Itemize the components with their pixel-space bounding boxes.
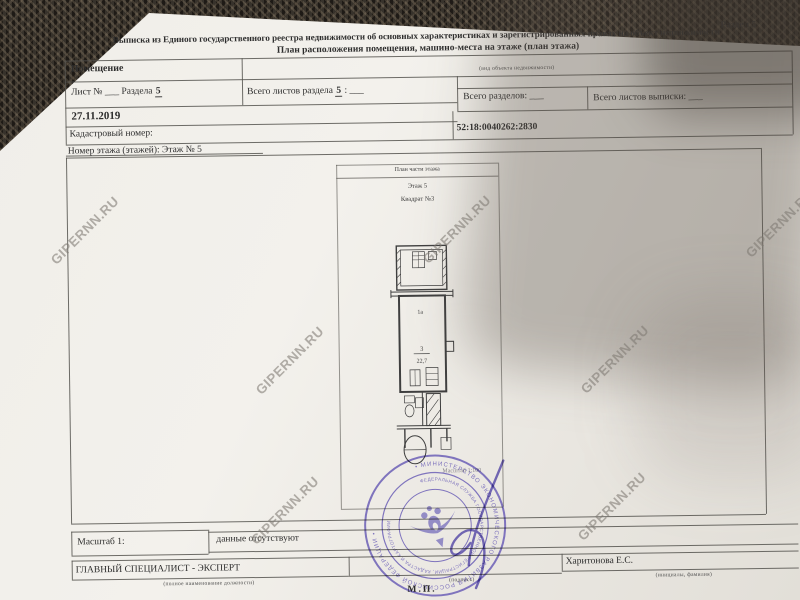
divider	[65, 72, 792, 83]
divider	[72, 554, 209, 557]
total-sheets-cell: Всего листов раздела 5 : ___	[247, 85, 364, 97]
cadastral-label: Кадастровый номер:	[70, 128, 153, 139]
divider	[587, 86, 588, 109]
divider	[72, 561, 73, 580]
divider	[457, 107, 792, 113]
divider	[457, 76, 458, 111]
divider	[349, 557, 350, 576]
signer-position: ГЛАВНЫЙ СПЕЦИАЛИСТ - ЭКСПЕРТ	[76, 563, 240, 575]
total-extract-sheets-cell: Всего листов выписки: ___	[593, 92, 703, 104]
room-number: 3	[420, 346, 423, 353]
divider	[562, 554, 563, 571]
divider	[452, 111, 453, 139]
razdel-label: Раздела	[121, 86, 152, 96]
plan-floor-label: Этаж 5	[336, 182, 498, 191]
extract-date: 27.11.2019	[71, 110, 120, 123]
room-top-label: 1а	[417, 310, 423, 316]
total-sheets-blank: : ___	[344, 85, 363, 95]
plan-title: План части этажа	[336, 166, 498, 174]
document: Раздел 5 Выписка из Единого государствен…	[0, 0, 800, 600]
plan-frame	[336, 165, 342, 509]
cadastral-number: 52:18:0040262:2830	[457, 122, 538, 133]
floor-plan-drawing: 1а 3 22,7	[382, 241, 481, 472]
position-caption: (полное наименование должности)	[94, 579, 324, 588]
divider	[242, 58, 244, 105]
plan-frame	[336, 176, 498, 179]
plan-box-border	[761, 148, 767, 514]
total-razdels-cell: Всего разделов: ___	[463, 91, 544, 102]
divider	[65, 102, 457, 108]
room-area: 22,7	[417, 359, 428, 365]
total-sheets-label: Всего листов раздела	[247, 86, 333, 97]
divider	[66, 121, 458, 127]
handwritten-signature	[427, 446, 539, 600]
object-type: Помещение	[71, 63, 124, 75]
photo-of-document: Раздел 5 Выписка из Единого государствен…	[0, 0, 800, 600]
floor-number-line: Номер этажа (этажей): Этаж № 5	[68, 145, 202, 157]
sheet-label: Лист №	[71, 87, 102, 97]
name-caption: (инициалы, фамилия)	[614, 571, 754, 579]
divider	[208, 530, 209, 554]
divider	[66, 135, 793, 146]
total-sheets-number: 5	[335, 86, 342, 97]
sheet-number-cell: Лист № ___ Раздела 5	[71, 86, 162, 97]
divider	[71, 530, 208, 533]
scale-label: Масштаб 1:	[77, 537, 124, 548]
divider	[71, 532, 72, 556]
sheet-blank: ___	[105, 87, 119, 97]
signer-name: Харитонова Е.С.	[566, 556, 634, 567]
divider	[792, 50, 794, 134]
plan-box-border	[66, 158, 72, 524]
divider	[65, 61, 67, 145]
razdel-number: 5	[155, 86, 162, 97]
divider	[457, 84, 792, 90]
